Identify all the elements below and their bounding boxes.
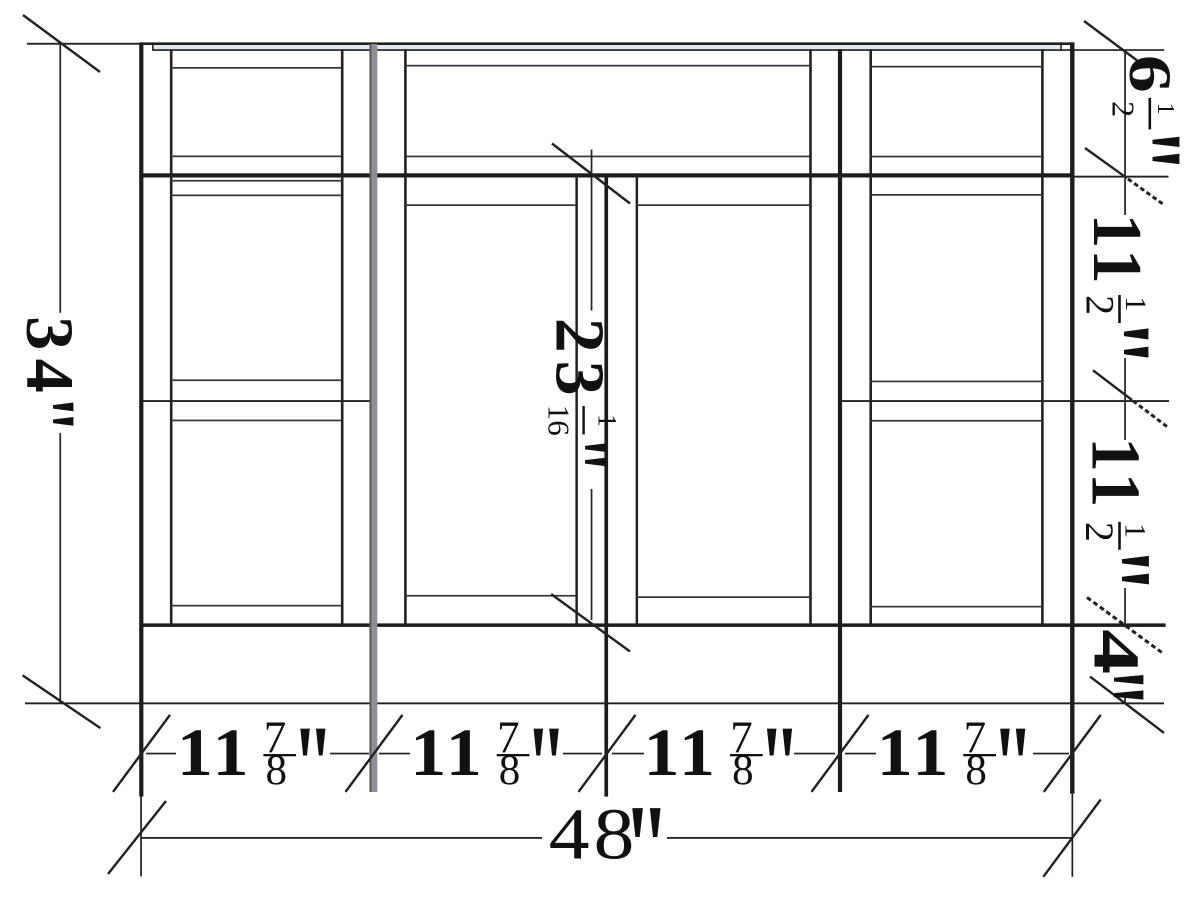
svg-text:11: 11 <box>1077 437 1154 512</box>
svg-text:11: 11 <box>1078 213 1155 288</box>
svg-text:2: 2 <box>1078 295 1123 315</box>
svg-text:2: 2 <box>1077 522 1122 542</box>
svg-text:": " <box>623 779 670 914</box>
svg-text:1: 1 <box>1152 103 1178 115</box>
svg-text:34: 34 <box>12 316 88 401</box>
svg-text:": " <box>1058 319 1174 368</box>
svg-text:11: 11 <box>177 716 252 791</box>
svg-text:1: 1 <box>1119 296 1152 311</box>
svg-text:": " <box>1033 667 1171 708</box>
svg-text:2: 2 <box>1105 101 1141 117</box>
svg-text:": " <box>1049 547 1176 594</box>
svg-text:23: 23 <box>541 318 618 404</box>
svg-text:1: 1 <box>593 414 622 427</box>
svg-text:": " <box>292 702 334 828</box>
svg-text:16: 16 <box>542 405 577 436</box>
svg-text:": " <box>1079 128 1196 174</box>
svg-text:1: 1 <box>1119 523 1152 538</box>
svg-text:": " <box>527 436 626 474</box>
svg-text:6: 6 <box>1117 55 1183 93</box>
svg-text:": " <box>0 395 93 433</box>
